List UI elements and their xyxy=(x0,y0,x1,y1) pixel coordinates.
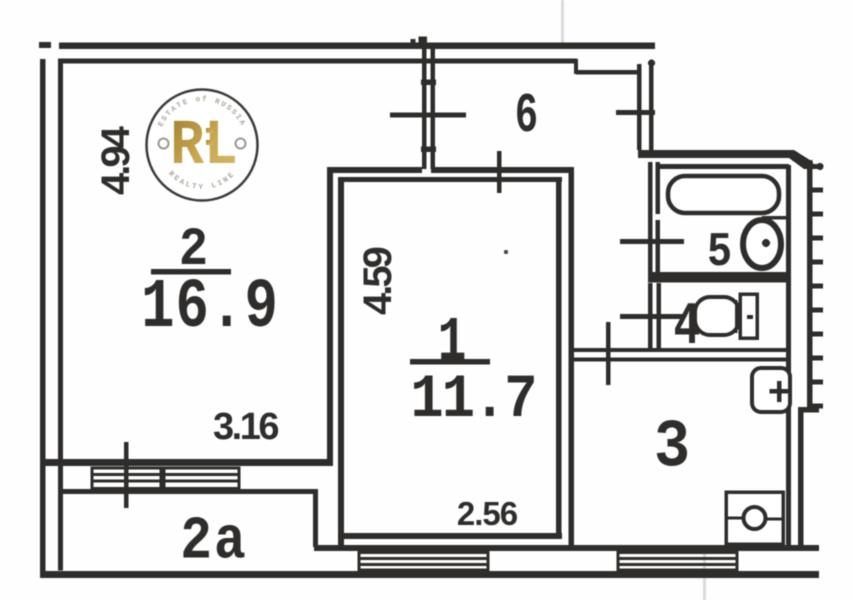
svg-text:5: 5 xyxy=(707,224,732,280)
svg-text:2a: 2a xyxy=(180,508,247,576)
svg-text:3: 3 xyxy=(654,410,690,486)
svg-text:4.94: 4.94 xyxy=(94,125,138,195)
svg-text:6: 6 xyxy=(515,86,538,148)
svg-text:RL: RL xyxy=(170,111,238,183)
svg-text:3.16: 3.16 xyxy=(213,406,278,448)
svg-text:11.7: 11.7 xyxy=(410,364,535,434)
svg-text:4.59: 4.59 xyxy=(356,247,400,315)
svg-text:4: 4 xyxy=(674,293,701,361)
svg-text:2.56: 2.56 xyxy=(457,495,518,532)
svg-text:16.9: 16.9 xyxy=(141,269,279,347)
